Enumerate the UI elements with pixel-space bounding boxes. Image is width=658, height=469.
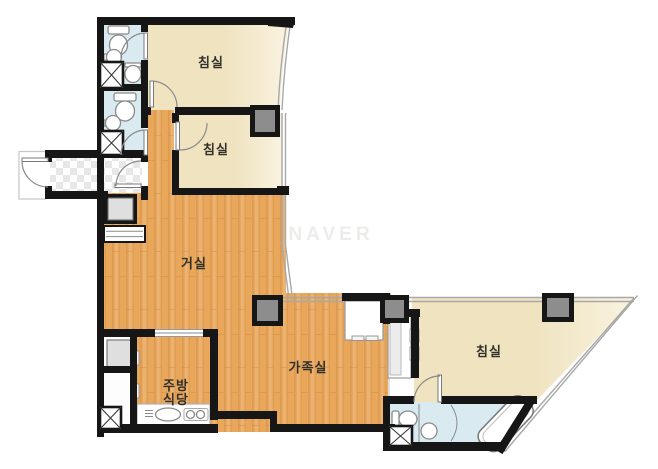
burner (187, 411, 195, 419)
round-sink (421, 423, 437, 439)
floor-plan-image: NAVER 침실 침실 거실 가족실 주방 식당 침실 (0, 0, 658, 469)
duct-shaft (100, 131, 123, 155)
kitchen-label-line1: 주방 (163, 378, 189, 393)
entrance-door (22, 158, 48, 187)
naver-watermark: NAVER (288, 224, 373, 245)
kitchen-counter (137, 404, 210, 425)
corridor-floor (148, 110, 174, 198)
bedroom-top-label: 침실 (198, 55, 224, 70)
shoe-cabinet (104, 226, 145, 242)
pillar (380, 295, 409, 323)
kitchen-sink (156, 408, 181, 421)
duct-shaft (100, 62, 123, 88)
pillars (250, 105, 574, 326)
bidet-bowl (125, 66, 141, 83)
duct-shaft (389, 426, 412, 446)
pillar (542, 293, 574, 322)
bedroom-right-floor (412, 298, 636, 402)
entry-closet (108, 198, 133, 220)
kitchen-window (151, 329, 207, 337)
toilet-tank (114, 93, 136, 101)
pillar (250, 105, 280, 137)
bedroom-middle-label: 침실 (203, 142, 229, 157)
burner (197, 411, 205, 419)
toilet-tank (108, 26, 129, 34)
floor-plan-svg: NAVER 침실 침실 거실 가족실 주방 식당 침실 (0, 0, 658, 469)
family-room-label: 가족실 (289, 360, 328, 375)
round-sink (106, 116, 121, 131)
pillar (252, 295, 283, 326)
toilet-bowl (399, 411, 417, 427)
bedroom-right-label: 침실 (476, 344, 502, 359)
kitchen-label-line2: 식당 (163, 392, 189, 407)
family-storage-closet (345, 301, 383, 341)
living-room-label: 거실 (181, 256, 207, 271)
duct-shaft (100, 407, 121, 429)
